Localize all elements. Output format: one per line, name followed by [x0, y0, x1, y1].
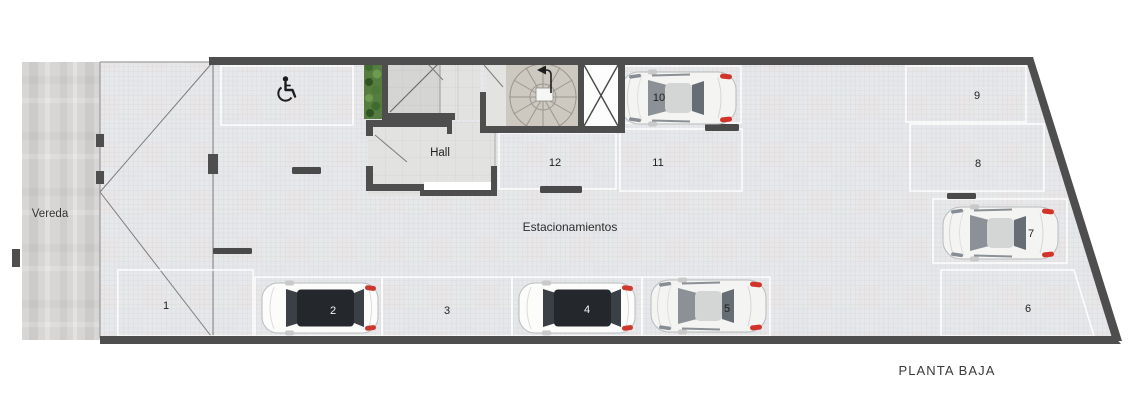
spot-label-12: 12: [549, 157, 561, 169]
parking-area-label: Estacionamientos: [523, 220, 618, 234]
spot-label-1: 1: [163, 300, 169, 312]
car-spot-7: [943, 205, 1058, 262]
hall-label: Hall: [430, 147, 450, 159]
perimeter-wall-bottom: [100, 336, 1121, 344]
spot-label-7: 7: [1028, 228, 1034, 240]
floor-plan-canvas: Vereda Hall Estacionamientos 1 2 3 4 5 6…: [0, 0, 1140, 403]
car-spot-10: [621, 70, 736, 127]
spiral-staircase: [506, 63, 578, 131]
spot-label-5: 5: [724, 303, 730, 315]
spot-label-3: 3: [444, 305, 450, 317]
gate-post: [96, 134, 104, 147]
spot-label-11: 11: [652, 157, 663, 169]
elevator-shaft: [583, 64, 619, 127]
spot-label-9: 9: [974, 90, 980, 102]
floor-plan: Vereda Hall Estacionamientos 1 2 3 4 5 6…: [0, 0, 1140, 403]
curb-post: [12, 249, 20, 267]
floor-title: PLANTA BAJA: [898, 363, 995, 378]
car-spot-2: [262, 281, 378, 336]
pillar: [208, 154, 218, 174]
storage-room: [388, 64, 443, 114]
spot-label-10: 10: [653, 92, 665, 104]
spot-label-4: 4: [584, 304, 590, 316]
spot-label-8: 8: [975, 158, 981, 170]
spot-label-6: 6: [1025, 303, 1031, 315]
gate-post: [96, 171, 104, 184]
spot-label-2: 2: [330, 305, 336, 317]
car-spot-4: [519, 281, 635, 336]
hall-entrance-opening: [424, 182, 491, 190]
sidewalk-label: Vereda: [32, 208, 69, 220]
car-spot-5: [651, 278, 766, 335]
perimeter-wall-top: [209, 57, 1032, 65]
hedge: [364, 60, 382, 120]
sidewalk: [22, 62, 100, 340]
